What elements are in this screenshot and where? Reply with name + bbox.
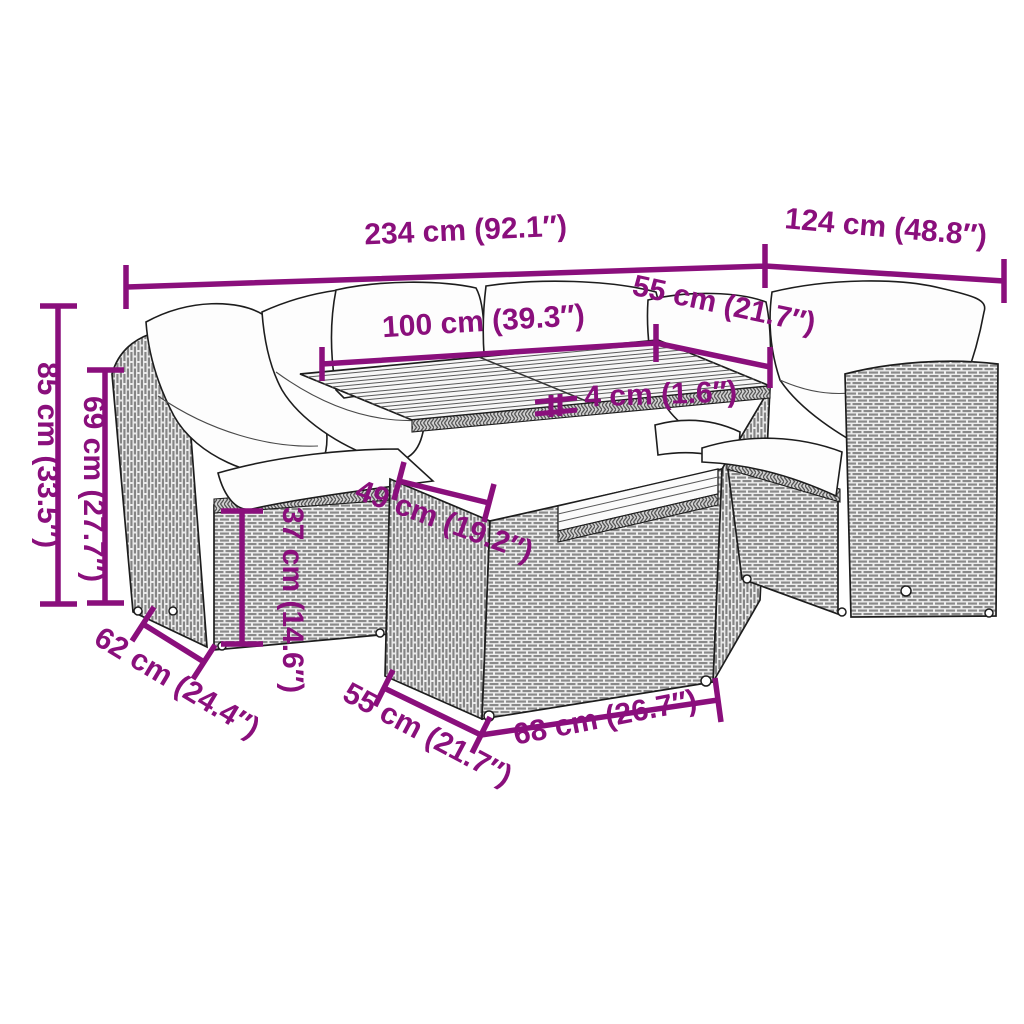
backrest-height-label: 69 cm (27.7″) <box>77 396 110 582</box>
right-arm-cap <box>901 586 911 596</box>
right-arm-panel <box>845 361 998 617</box>
diagram-canvas: 234 cm (92.1″) 124 cm (48.8″) 100 cm (39… <box>0 0 1024 1024</box>
foot <box>701 676 711 686</box>
seat-height-label: 37 cm (14.6″) <box>276 507 309 693</box>
left-arm-cap <box>169 607 177 615</box>
tabletop-thickness-label: 4 cm (1.6″) <box>584 375 738 413</box>
dimension-total-height: 85 cm (33.5″) <box>31 306 77 604</box>
foot <box>743 575 751 583</box>
foot <box>838 608 846 616</box>
foot <box>985 609 993 617</box>
overall-width-label: 234 cm (92.1″) <box>364 210 568 252</box>
diagram-stage: 234 cm (92.1″) 124 cm (48.8″) 100 cm (39… <box>0 0 1024 1024</box>
right-section-depth-label: 124 cm (48.8″) <box>783 202 988 253</box>
total-height-label: 85 cm (33.5″) <box>31 362 64 548</box>
foot <box>134 607 142 615</box>
foot <box>376 629 384 637</box>
